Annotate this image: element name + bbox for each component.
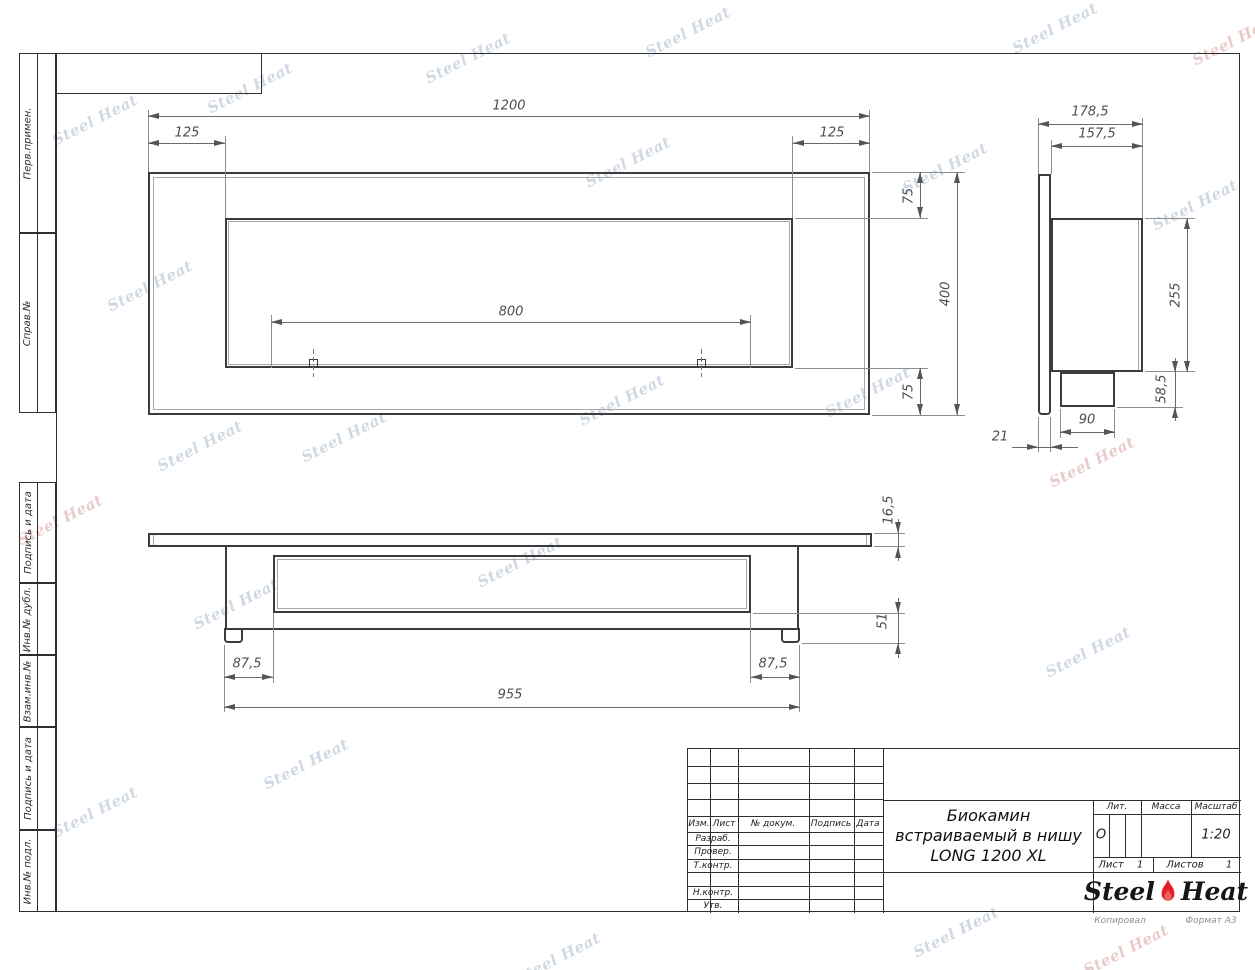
tb-line [1093, 814, 1241, 815]
centerline [701, 349, 702, 377]
tb-line [688, 816, 883, 817]
copied-label: Копировал [1094, 916, 1145, 926]
tb-line [1153, 857, 1154, 872]
tb-row-tkontr: Т.контр. [693, 861, 732, 871]
dim-front-top-margin: 75 [902, 188, 917, 205]
arrow [148, 140, 159, 146]
ext-line [750, 613, 751, 683]
arrow [789, 704, 800, 710]
dim-line [1051, 146, 1143, 147]
bottom-burner-fold-line [277, 559, 747, 609]
margin-label-sprav: Справ.№ [19, 233, 37, 413]
tb-massa-label: Масса [1152, 802, 1181, 812]
arrow [148, 113, 159, 119]
drawing-sheet: Steel Heat Steel Heat Steel Heat Steel H… [0, 0, 1255, 970]
tb-listov-value: 1 [1226, 859, 1232, 870]
dim-line [224, 707, 800, 708]
tb-line [1141, 800, 1142, 857]
arrow [1038, 121, 1049, 127]
arrow [224, 704, 235, 710]
arrow [214, 140, 225, 146]
ext-line [273, 613, 274, 683]
dim-bottom-body-height: 51 [876, 613, 891, 630]
dim-bottom-right-offset: 87,5 [759, 657, 788, 672]
tb-masshtab-value: 1:20 [1201, 828, 1230, 843]
dim-side-body-height: 255 [1169, 283, 1184, 308]
dim-line [271, 322, 751, 323]
drawing-title: Биокамин встраиваемый в нишу LONG 1200 X… [884, 800, 1093, 872]
plate-end-line [153, 535, 154, 545]
ext-line [874, 533, 905, 534]
front-opening-fold-line [228, 221, 790, 365]
dim-front-overall-height: 400 [939, 282, 954, 307]
ext-line [872, 415, 965, 416]
tb-row-utv: Утв. [704, 901, 723, 911]
ext-line [802, 643, 905, 644]
tb-line [1191, 800, 1192, 857]
format-label: Формат А3 [1185, 916, 1236, 926]
arrow [859, 113, 870, 119]
dim-bottom-left-offset: 87,5 [233, 657, 262, 672]
tb-header-sign: Подпись [811, 819, 851, 829]
arrow [1060, 429, 1071, 435]
tb-line [688, 799, 883, 800]
margin-label-podpis1: Подпись и дата [19, 482, 37, 583]
dim-side-flange-thickness: 21 [992, 430, 1009, 445]
dim-line [148, 116, 870, 117]
arrow [1051, 143, 1062, 149]
arrow [751, 674, 762, 680]
watermark: Steel Heat [512, 929, 603, 970]
margin-label-perv: Перв.примен. [19, 53, 37, 233]
dim-line [957, 172, 958, 415]
ext-line [795, 368, 928, 369]
tb-line [854, 749, 855, 913]
arrow [917, 404, 923, 415]
dim-front-overall-width: 1200 [492, 99, 525, 114]
tb-list-label: Лист [1098, 859, 1123, 870]
arrow [1184, 361, 1190, 372]
arrow [917, 172, 923, 183]
tb-header-doc: № докум. [751, 819, 795, 829]
arrow [954, 172, 960, 183]
ext-line [795, 218, 928, 219]
arrow [895, 602, 901, 613]
flame-icon [1157, 878, 1179, 906]
arrow [917, 207, 923, 218]
arrow [1132, 143, 1143, 149]
margin-label-text: Инв.№ дубл. [23, 586, 34, 651]
top-left-stamp-box [56, 53, 262, 94]
side-flange [1038, 174, 1051, 415]
dim-front-bottom-margin: 75 [902, 384, 917, 401]
tb-header-date: Дата [856, 819, 879, 829]
bottom-body-left-edge [225, 547, 227, 628]
margin-label-inv-podl: Инв.№ подл. [19, 830, 37, 912]
tb-line [688, 899, 883, 900]
arrow [224, 674, 235, 680]
arrow [271, 319, 282, 325]
arrow [954, 404, 960, 415]
margin-label-text: Взам.инв.№ [23, 660, 34, 722]
tb-line [738, 749, 739, 913]
watermark: Steel Heat [1080, 921, 1171, 970]
side-body [1051, 218, 1143, 372]
arrow [895, 643, 901, 654]
arrow [789, 674, 800, 680]
tb-line [688, 783, 883, 784]
plate-end-line [866, 535, 867, 545]
arrow [793, 140, 804, 146]
tb-row-prover: Провер. [694, 847, 731, 857]
ext-line [225, 136, 226, 218]
margin-label-vzam: Взам.инв.№ [19, 655, 37, 727]
dim-side-overall-depth: 178,5 [1071, 105, 1108, 120]
watermark: Steel Heat [1009, 0, 1100, 57]
dim-line [1038, 124, 1143, 125]
logo-steel-text: Steel [1084, 877, 1155, 906]
title-line-3: LONG 1200 XL [930, 846, 1046, 866]
dim-front-left-margin: 125 [175, 126, 200, 141]
tb-list-value: 1 [1137, 859, 1143, 870]
margin-divider [37, 482, 38, 912]
dim-side-body-depth: 157,5 [1078, 127, 1115, 142]
tb-line [1109, 814, 1110, 857]
arrow [1172, 361, 1178, 372]
tb-header-izm: Изм. [688, 819, 709, 829]
title-line-2: встраиваемый в нишу [895, 826, 1082, 846]
logo-heat-text: Heat [1181, 877, 1248, 906]
tb-line [688, 766, 883, 767]
dim-bottom-flange-thickness: 16,5 [882, 496, 897, 525]
dim-line [1012, 447, 1078, 448]
tb-line [688, 845, 883, 846]
dim-line [1187, 218, 1188, 372]
title-block: Изм. Лист № докум. Подпись Дата Разраб. … [687, 748, 1240, 912]
tb-row-nkontr: Н.контр. [693, 888, 733, 898]
tb-row-razrab: Разраб. [695, 834, 730, 844]
bottom-body-bottom-edge [225, 628, 799, 630]
margin-label-text: Справ.№ [23, 300, 34, 345]
dim-side-spout-height: 58,5 [1155, 375, 1170, 404]
margin-label-text: Подпись и дата [23, 737, 34, 820]
arrow [1027, 444, 1038, 450]
bottom-foot-right [781, 628, 800, 643]
bottom-flange-plate [148, 533, 872, 547]
tb-line [1093, 857, 1241, 858]
tb-line [1125, 814, 1126, 857]
dim-front-right-margin: 125 [820, 126, 845, 141]
margin-label-text: Перв.примен. [23, 107, 34, 179]
tb-header-list: Лист [713, 819, 736, 829]
side-fold-line [1138, 220, 1139, 370]
dim-side-spout-width: 90 [1079, 413, 1096, 428]
arrow [895, 547, 901, 558]
tb-lit-value: О [1096, 828, 1106, 843]
tb-listov-label: Листов [1166, 859, 1203, 870]
margin-label-text: Подпись и дата [23, 491, 34, 574]
arrow [1104, 429, 1115, 435]
company-logo: Steel Heat [1093, 872, 1239, 911]
bottom-body-right-edge [797, 547, 799, 628]
margin-label-text: Инв.№ подл. [23, 838, 34, 904]
margin-label-podpis2: Подпись и дата [19, 727, 37, 830]
arrow [1051, 444, 1062, 450]
arrow [1172, 407, 1178, 418]
tb-masshtab-label: Масштаб [1195, 802, 1238, 812]
arrow [859, 140, 870, 146]
dim-front-opening-width: 800 [499, 305, 524, 320]
side-lower-box [1060, 372, 1115, 407]
arrow [1132, 121, 1143, 127]
arrow [262, 674, 273, 680]
dim-bottom-body-width: 955 [498, 688, 523, 703]
bottom-foot-left [224, 628, 243, 643]
margin-divider [37, 53, 38, 413]
arrow [917, 368, 923, 379]
centerline [313, 349, 314, 377]
ext-line [792, 136, 793, 218]
tb-lit-label: Лит. [1107, 802, 1128, 812]
tb-line [809, 749, 810, 913]
arrow [1184, 218, 1190, 229]
title-line-1: Биокамин [947, 806, 1031, 826]
ext-line [1142, 118, 1143, 218]
arrow [740, 319, 751, 325]
margin-label-inv-dubl: Инв.№ дубл. [19, 583, 37, 655]
